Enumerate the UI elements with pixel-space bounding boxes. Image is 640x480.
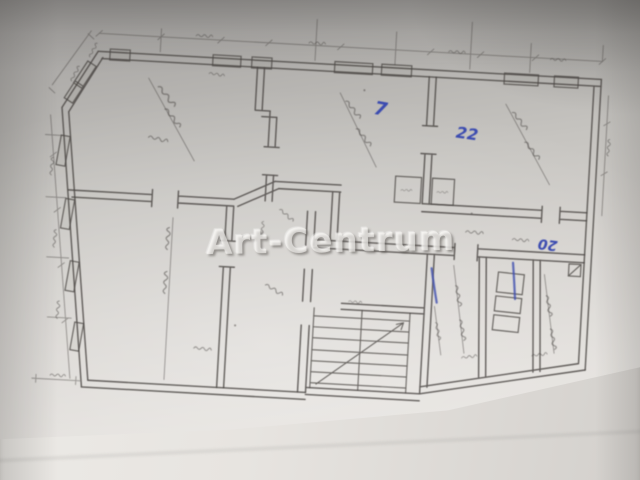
dimension-lines [32,0,616,414]
watermark: Art-Centrum [206,219,456,263]
room-number-annotation: 20 [537,235,558,253]
blue-pen-strokes [430,258,517,307]
room-number-annotation: 22 [455,123,480,145]
windows [46,46,579,378]
floorplan-photo: 7 22 20 Art-Centrum [0,0,640,480]
staircase [310,308,410,393]
